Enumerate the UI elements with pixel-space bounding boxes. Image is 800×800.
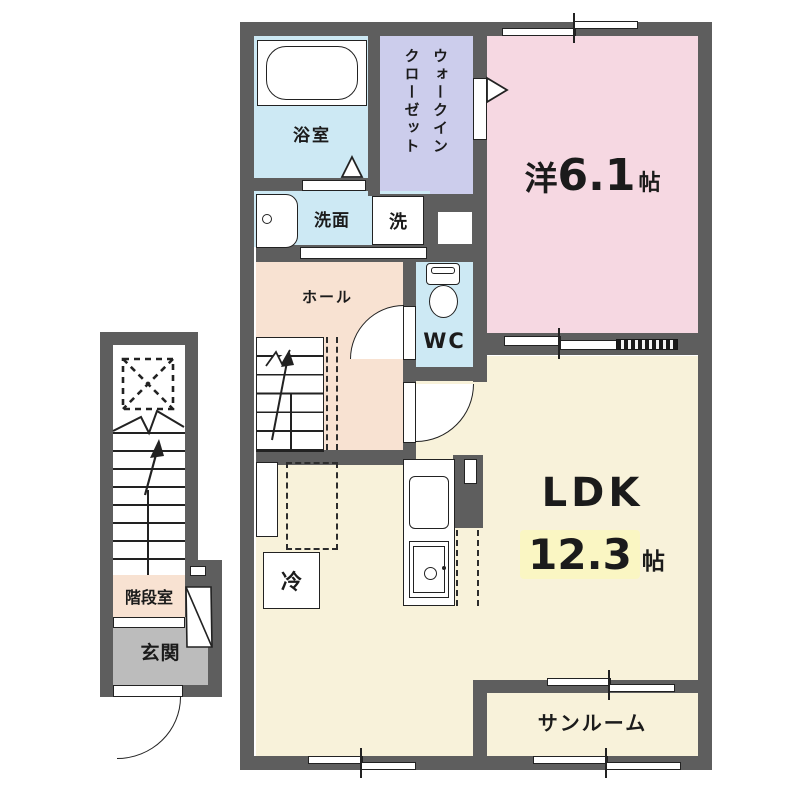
sunroom-top-window-pane (547, 678, 611, 686)
western-ldk-slider-pane (560, 340, 617, 350)
western-window-pane (502, 28, 576, 36)
wall-sunroom-left (473, 680, 487, 770)
western-door-leaf (473, 78, 487, 140)
kitchen-counter-dash (477, 530, 479, 606)
entrance-step-bar (113, 617, 185, 628)
sunroom-bottom-window-tick (605, 748, 607, 778)
sink-drain-icon (262, 214, 272, 224)
western-window-tick (573, 13, 575, 43)
fridge-label: 冷 (263, 552, 320, 609)
western-ldk-slider-pane (504, 336, 561, 346)
sunroom-bottom-window-pane (533, 756, 608, 764)
floor-plan: 浴室 ウォークイン クローゼット 洋6.1帖 洗面 洗 ホール WC LDK 1… (0, 0, 800, 800)
western-ldk-slider-tick (558, 328, 560, 359)
hall-door-leaf (403, 306, 416, 360)
front-door-leaf (113, 685, 183, 697)
bathtub-inner (266, 46, 358, 100)
stove-icon (409, 476, 449, 529)
toilet-lid-icon (431, 267, 455, 274)
stair-room-label: 階段室 (111, 575, 187, 617)
western-door-triangle-icon (486, 77, 508, 103)
stairs-open-rail (336, 337, 338, 450)
wall-wc-bottom (416, 367, 473, 381)
wc-label: WC (416, 326, 473, 356)
void-x-icon (121, 357, 175, 411)
bath-label: 浴室 (254, 118, 370, 148)
wall-bath-wic (368, 36, 380, 196)
ldk-size-highlight: 12.3 (520, 530, 640, 579)
kitchen-stub-notch (464, 459, 477, 484)
sunroom-top-window-pane (609, 684, 675, 692)
ldk-bottom-window-pane (361, 762, 416, 770)
wall-left (240, 22, 254, 770)
sunroom-label: サンルーム (487, 698, 698, 744)
wall-top (240, 22, 712, 36)
western-room-label: 洋6.1帖 (487, 150, 698, 216)
kitchen-faucet-dot (442, 566, 446, 570)
ldk-door-leaf (403, 382, 416, 443)
ldk-bottom-window-pane (308, 756, 363, 764)
stairs-open-rail (326, 337, 328, 450)
wic-label-line2: クローゼット (397, 48, 426, 170)
hall-stairs-arrow-icon (258, 340, 320, 450)
bath-door-triangle-icon (341, 156, 363, 178)
annex-window (190, 566, 206, 576)
ldk-label: LDK (487, 468, 698, 518)
toilet-bowl-icon (429, 285, 458, 318)
wic-label: ウォークイン クローゼット (392, 48, 454, 170)
entrance-label: 玄関 (113, 633, 208, 669)
wic-label-line1: ウォークイン (426, 48, 455, 170)
understair-closet (256, 462, 278, 537)
washroom-label: 洗面 (300, 203, 364, 233)
washer-label: 洗 (372, 196, 424, 245)
wall-right (698, 22, 712, 770)
annex-stairs-arrow-icon (113, 405, 185, 500)
front-door-arc (117, 697, 181, 759)
sunroom-top-window-tick (608, 670, 610, 700)
western-window-pane (574, 21, 638, 29)
washroom-sliding-door (300, 247, 427, 259)
understair-dashed-area (286, 462, 338, 550)
annex-stairs-divider (147, 490, 149, 575)
bath-sliding-door (302, 180, 366, 191)
sunroom-bottom-window-pane (606, 762, 681, 770)
kitchen-drain-icon (424, 567, 437, 580)
kitchen-counter-dash (456, 530, 458, 606)
hall-label: ホール (280, 283, 375, 309)
wc-opening (438, 212, 472, 244)
ldk-size-label: 12.3 帖 (487, 530, 698, 582)
ldk-bottom-window-tick (360, 748, 362, 778)
western-ldk-slider-panel (616, 339, 678, 350)
